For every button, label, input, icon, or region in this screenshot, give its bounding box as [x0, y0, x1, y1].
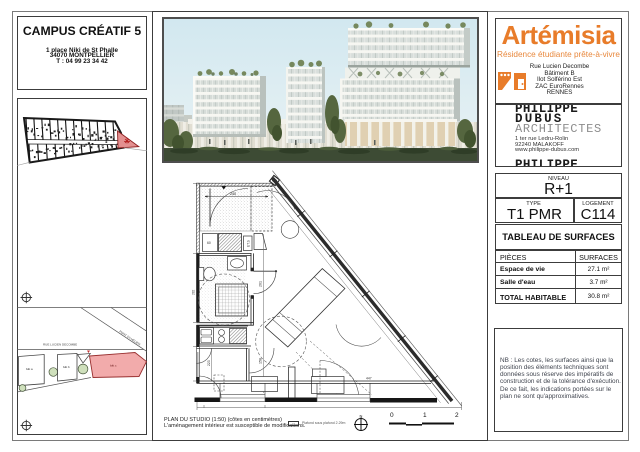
svg-text:0: 0	[390, 412, 394, 419]
svg-text:60: 60	[207, 241, 211, 245]
svg-text:223: 223	[207, 360, 211, 366]
svg-text:bât a: bât a	[26, 367, 33, 371]
svg-text:2: 2	[455, 412, 459, 419]
svg-text:158: 158	[259, 358, 263, 364]
svg-text:1: 1	[423, 412, 427, 419]
svg-text:PONT ST-HELIER: PONT ST-HELIER	[118, 329, 141, 346]
svg-text:ET.S: ET.S	[247, 240, 251, 247]
svg-text:261: 261	[259, 281, 263, 287]
svg-text:bât c: bât c	[110, 364, 117, 368]
svg-text:282: 282	[192, 289, 196, 295]
svg-text:RUE LUCIEN DECOMBE: RUE LUCIEN DECOMBE	[43, 343, 77, 347]
svg-text:447: 447	[366, 377, 372, 381]
svg-text:bât b: bât b	[63, 365, 70, 369]
